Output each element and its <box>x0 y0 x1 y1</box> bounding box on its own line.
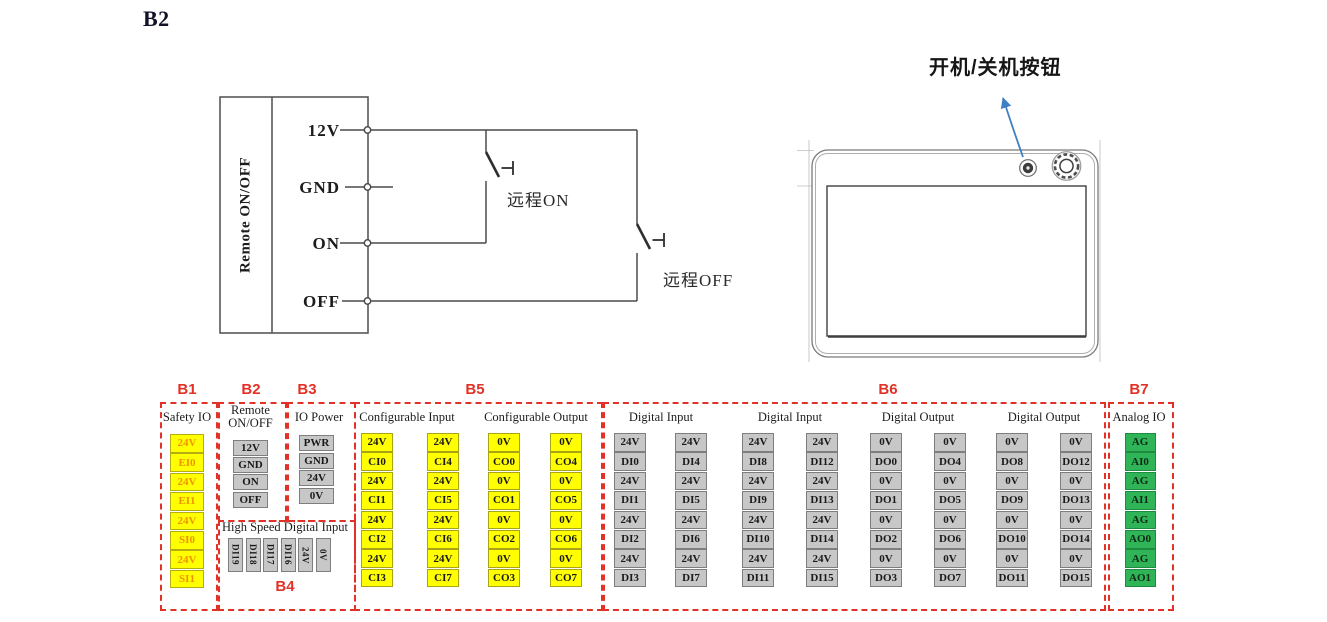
terminal-cell: DO7 <box>934 569 966 588</box>
terminal-cell: 24V <box>361 433 393 452</box>
terminal-cell: 0V <box>550 433 582 452</box>
terminal-cell: DO15 <box>1060 569 1092 588</box>
section-header: Digital Output <box>1008 411 1081 424</box>
terminal-cell: 0V <box>870 472 902 491</box>
terminal-cell: DO11 <box>996 569 1028 588</box>
section-header: Configurable Input <box>359 411 454 424</box>
terminal-cell: 24V <box>361 549 393 568</box>
terminal-cell: 24V <box>614 511 646 530</box>
terminal-cell: DO12 <box>1060 452 1092 471</box>
terminal-cell: CO7 <box>550 569 582 588</box>
terminal-cell: 24V <box>675 472 707 491</box>
terminal-cell: DO14 <box>1060 530 1092 549</box>
terminal-cell: DO3 <box>870 569 902 588</box>
terminal-cell: CO5 <box>550 491 582 510</box>
remote-onoff-box-label: Remote ON/OFF <box>238 157 255 273</box>
terminal-cell: DO5 <box>934 491 966 510</box>
terminal-cell: DI13 <box>806 491 838 510</box>
terminal-cell: CI2 <box>361 530 393 549</box>
remote-off-label: 远程OFF <box>663 266 733 291</box>
terminal-cell: DI17 <box>263 538 278 572</box>
terminal-cell: CO1 <box>488 491 520 510</box>
manual-figure-page: B2 Remote ON/OFF 12V GND ON OFF 远程ON 远程O… <box>0 0 1327 622</box>
terminal-cell: 0V <box>870 511 902 530</box>
device-screen <box>827 186 1086 336</box>
terminal-cell: 24V <box>427 472 459 491</box>
terminal-cell: 24V <box>742 472 774 491</box>
terminal-cell: 24V <box>298 538 313 572</box>
terminal-cell: DI11 <box>742 569 774 588</box>
terminal-cell: 24V <box>614 549 646 568</box>
terminal-cell: 24V <box>675 433 707 452</box>
terminal-cell: 24V <box>427 511 459 530</box>
terminal-cell: CI0 <box>361 452 393 471</box>
terminal-cell: 0V <box>996 511 1028 530</box>
section-label-b7: B7 <box>1129 381 1148 398</box>
terminal-cell: DO13 <box>1060 491 1092 510</box>
terminal-cell: 24V <box>170 473 204 492</box>
terminal-cell: 0V <box>488 433 520 452</box>
terminal-cell: DI6 <box>675 530 707 549</box>
terminal-cell: 0V <box>1060 433 1092 452</box>
terminal-cell: CI3 <box>361 569 393 588</box>
terminal-cell: DI12 <box>806 452 838 471</box>
terminal-cell: DI7 <box>675 569 707 588</box>
terminal-cell: DO0 <box>870 452 902 471</box>
terminal-cell: 0V <box>934 549 966 568</box>
terminal-cell: CO4 <box>550 452 582 471</box>
terminal-cell: 0V <box>870 433 902 452</box>
terminal-cell: CO6 <box>550 530 582 549</box>
terminal-cell: DI1 <box>614 491 646 510</box>
terminal-cell: CI1 <box>361 491 393 510</box>
terminal-cell: 24V <box>427 549 459 568</box>
terminal-cell: 24V <box>170 512 204 531</box>
terminal-cell: 24V <box>614 433 646 452</box>
pin-label-off: OFF <box>278 292 340 312</box>
terminal-cell: 0V <box>996 433 1028 452</box>
terminal-cell: 0V <box>996 549 1028 568</box>
terminal-cell: AG <box>1125 549 1156 568</box>
terminal-cell: 0V <box>934 433 966 452</box>
terminal-cell: 24V <box>170 550 204 569</box>
terminal-cell: 0V <box>934 511 966 530</box>
terminal-cell: GND <box>299 453 334 469</box>
terminal-cell: 0V <box>934 472 966 491</box>
section-header: Digital Output <box>882 411 955 424</box>
section-label-b3: B3 <box>297 381 316 398</box>
terminal-cell: DI8 <box>742 452 774 471</box>
terminal-cell: CO2 <box>488 530 520 549</box>
terminal-cell: DI9 <box>742 491 774 510</box>
terminal-cell: DO4 <box>934 452 966 471</box>
terminal-cell: 24V <box>361 472 393 491</box>
terminal-cell: CO3 <box>488 569 520 588</box>
terminal-cell: AG <box>1125 472 1156 491</box>
terminal-cell: AI1 <box>1125 491 1156 510</box>
terminal-cell: DO8 <box>996 452 1028 471</box>
terminal-cell: PWR <box>299 435 334 451</box>
pin-label-12v: 12V <box>278 121 340 141</box>
terminal-cell: 0V <box>1060 549 1092 568</box>
terminal-cell: 0V <box>1060 511 1092 530</box>
terminal-cell: DI19 <box>228 538 243 572</box>
terminal-cell: DI10 <box>742 530 774 549</box>
terminal-cell: DI0 <box>614 452 646 471</box>
terminal-cell: 0V <box>550 549 582 568</box>
terminal-cell: 0V <box>488 549 520 568</box>
terminal-cell: CI7 <box>427 569 459 588</box>
terminal-cell: CO0 <box>488 452 520 471</box>
terminal-cell: 24V <box>299 470 334 486</box>
terminal-cell: DI3 <box>614 569 646 588</box>
terminal-cell: SI1 <box>170 570 204 589</box>
section-header: Digital Input <box>758 411 822 424</box>
terminal-cell: 0V <box>996 472 1028 491</box>
terminal-cell: DI18 <box>246 538 261 572</box>
device-drawing <box>797 98 1100 362</box>
terminal-cell: DO2 <box>870 530 902 549</box>
terminal-cell: 0V <box>870 549 902 568</box>
terminal-cell: 24V <box>361 511 393 530</box>
terminal-cell: DI16 <box>281 538 296 572</box>
terminal-cell: DO9 <box>996 491 1028 510</box>
page-title: B2 <box>143 6 170 32</box>
remote-on-switch-icon <box>486 152 513 177</box>
power-button-icon <box>1020 160 1037 177</box>
terminal-cell: AO0 <box>1125 530 1156 549</box>
terminal-cell: DO6 <box>934 530 966 549</box>
terminal-cell: 24V <box>742 511 774 530</box>
terminal-cell: 0V <box>550 511 582 530</box>
terminal-cell: DI4 <box>675 452 707 471</box>
terminal-cell: GND <box>233 457 268 473</box>
terminal-cell: DI14 <box>806 530 838 549</box>
remote-off-switch-icon <box>637 224 664 249</box>
section-header: IO Power <box>295 411 343 424</box>
terminal-cell: 24V <box>675 511 707 530</box>
circuit-wires <box>340 127 637 304</box>
terminal-cell: 24V <box>614 472 646 491</box>
terminal-cell: 24V <box>427 433 459 452</box>
terminal-cell: CI5 <box>427 491 459 510</box>
terminal-cell: 24V <box>806 472 838 491</box>
terminal-cell: EI1 <box>170 492 204 511</box>
section-label-b4: B4 <box>275 578 294 595</box>
terminal-cell: 0V <box>488 511 520 530</box>
terminal-cell: SI0 <box>170 531 204 550</box>
terminal-cell: AG <box>1125 511 1156 530</box>
terminal-cell: DI5 <box>675 491 707 510</box>
terminal-cell: 24V <box>742 549 774 568</box>
section-label-b2: B2 <box>241 381 260 398</box>
callout-arrow <box>1003 98 1023 157</box>
terminal-cell: OFF <box>233 492 268 508</box>
terminal-cell: DI2 <box>614 530 646 549</box>
terminal-cell: AO1 <box>1125 569 1156 588</box>
section-header: Remote ON/OFF <box>220 404 282 430</box>
terminal-cell: DO1 <box>870 491 902 510</box>
terminal-cell: DI15 <box>806 569 838 588</box>
terminal-cell: 24V <box>675 549 707 568</box>
terminal-cell: AG <box>1125 433 1156 452</box>
terminal-cell: ON <box>233 474 268 490</box>
power-button-callout: 开机/关机按钮 <box>929 51 1062 80</box>
section-header: High Speed Digital Input <box>222 521 348 534</box>
remote-on-label: 远程ON <box>507 186 570 211</box>
terminal-cell: 24V <box>806 433 838 452</box>
estop-knob-icon <box>1052 152 1081 181</box>
section-label-b5: B5 <box>465 381 484 398</box>
terminal-cell: 24V <box>806 549 838 568</box>
terminal-cell: 0V <box>316 538 331 572</box>
terminal-cell: DO10 <box>996 530 1028 549</box>
terminal-cell: EI0 <box>170 453 204 472</box>
terminal-cell: 12V <box>233 440 268 456</box>
section-header: Safety IO <box>163 411 211 424</box>
section-header: Configurable Output <box>484 411 588 424</box>
terminal-cell: CI6 <box>427 530 459 549</box>
section-label-b6: B6 <box>878 381 897 398</box>
terminal-cell: 0V <box>488 472 520 491</box>
section-label-b1: B1 <box>177 381 196 398</box>
terminal-cell: 0V <box>299 488 334 504</box>
terminal-cell: 0V <box>1060 472 1092 491</box>
terminal-cell: 24V <box>806 511 838 530</box>
section-header: Analog IO <box>1112 411 1165 424</box>
pin-label-on: ON <box>278 234 340 254</box>
pin-label-gnd: GND <box>278 178 340 198</box>
terminal-cell: 24V <box>170 434 204 453</box>
terminal-cell: CI4 <box>427 452 459 471</box>
terminal-cell: AI0 <box>1125 452 1156 471</box>
section-header: Digital Input <box>629 411 693 424</box>
terminal-cell: 24V <box>742 433 774 452</box>
terminal-cell: 0V <box>550 472 582 491</box>
